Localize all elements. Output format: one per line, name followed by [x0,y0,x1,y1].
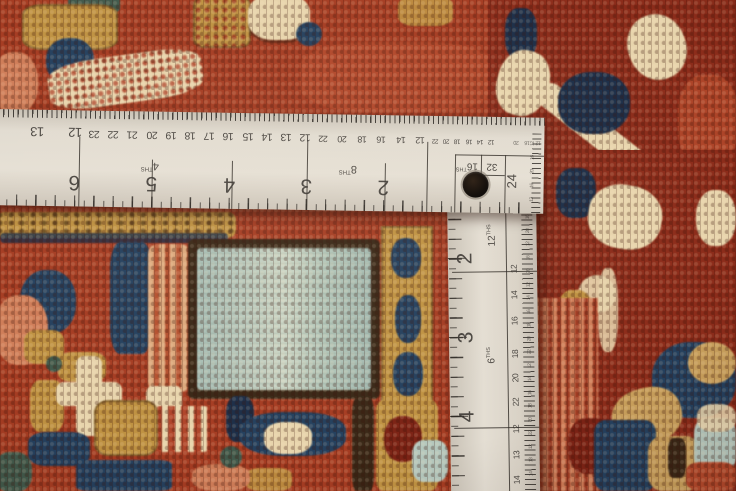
ruler-number: 18 [511,350,520,359]
ruler-corner-line [481,155,482,175]
ruler-number: 12 [416,135,425,144]
scale-value: 12 [487,235,498,246]
rug-motif-navy-on-gold1 [391,238,421,278]
ruler-scale-label-8ths: 8THS [339,163,357,175]
scale-value: 16 [467,160,478,171]
ruler-number: 4 [457,411,478,422]
rug-motif-gold-bits-bl [246,468,292,491]
rug-motif-salmon-blob [0,52,38,114]
ruler-number: 16 [223,130,234,141]
rug-motif-cream-blob-c [264,422,312,454]
rug-motif-redcream-stripes [155,406,209,452]
ruler-number: 20 [530,169,535,174]
ruler-number: 16 [531,155,536,160]
ruler-number: 16 [377,135,386,144]
ruler-number: 2 [454,253,475,264]
ruler-number: 14 [529,471,534,476]
ruler-number: 12 [527,282,532,287]
ruler-number: 12 [488,138,494,145]
ruler-number: 22 [108,129,119,140]
rug-motif-peach-columns [148,244,190,392]
rug-motif-bluesquare [197,248,371,390]
ruler-number: 3 [455,332,476,343]
ruler-number: 16 [528,390,533,395]
rug-motif-gold-L [94,400,158,456]
ruler-hang-hole [462,171,488,197]
ruler-number: 12 [528,363,533,368]
scale-unit: THS [486,347,492,358]
ruler-number: 4 [223,174,235,195]
scale-value: 6 [486,358,497,364]
ruler-number: 14 [528,377,533,382]
rug-motif-teal-c [220,446,242,468]
ruler-number: 12 [512,425,521,434]
ruler-number: 13 [281,131,292,142]
rug-motif-red-patch [300,42,495,112]
scale-unit: THS [486,224,492,235]
ruler-number: 12 [526,242,531,247]
ruler-number: 20 [511,374,520,383]
ruler-number: 12 [300,132,311,143]
scale-value: 4 [153,160,159,172]
rug-motif-red-bits [686,462,736,491]
ruler-number: 20 [527,269,532,274]
ruler-number: 20 [529,417,534,422]
ruler-number: 14 [513,476,522,485]
rug-motif-navy-curl2 [558,72,630,134]
rug-motif-teal-dots-bl [0,452,32,491]
ruler-number: 18 [527,323,532,328]
rug-motif-brown-stripe [352,398,374,491]
ruler-number: 14 [527,296,532,301]
ruler-number: 18 [528,404,533,409]
ruler-number: 12 [69,126,83,139]
ruler-number: 14 [510,291,519,300]
rug-motif-navy-dot [296,22,322,46]
ruler-number: 16 [526,215,531,220]
ruler-scale-label-6ths: 6THS [487,347,498,364]
ruler-number: 20 [338,134,347,143]
scale-value: 32 [486,161,497,172]
ruler-number: 21 [127,129,138,140]
ruler-number: 13 [529,458,534,463]
ruler-number: 22 [512,398,521,407]
ruler-scale-label-12ths: 12THS [487,224,498,246]
ruler-horizontal-arm: 1312 232221201918171615141312 2220181614… [0,109,545,214]
ruler-number: 14 [477,137,483,144]
ruler-number: 22 [432,137,438,144]
ruler-number: 18 [358,134,367,143]
rug-motif-teal-dot [46,356,62,372]
ruler-number: 22 [529,431,534,436]
photo-scene: 12THS 6THS 234 121416 182022 121314 1620… [0,0,736,491]
rug-motif-navy-column [110,242,152,354]
ruler-number: 5 [146,173,158,194]
ruler-number: 16 [530,183,535,188]
ruler-number: 14 [262,131,273,142]
ruler-number: 13 [31,125,45,138]
ruler-number: 20 [514,139,519,145]
rug-motif-tan-floral [688,342,736,384]
rug-motif-cream-zig2 [696,190,736,246]
ruler-number: 12 [530,197,535,202]
ruler-scale-label-32nds: 32 [486,161,497,171]
ruler-number: 22 [528,350,533,355]
ruler-number: 16 [466,137,472,144]
scale-value: 8 [351,163,357,175]
scale-unit: THS [456,166,467,172]
rug-motif-lightblue-bb [412,440,448,482]
ruler-number: 12 [531,141,536,146]
ruler-number: 16 [527,309,532,314]
ruler-scale-label-16ths: 16THS [456,160,478,171]
rug-motif-navy-band-bottom [76,460,172,491]
rug [0,0,736,491]
rug-motif-gold-block2 [193,0,251,48]
ruler-vertical-arm: 12THS 6THS 234 121416 182022 121314 1620… [447,195,540,491]
ruler-number: 17 [204,130,215,141]
ruler-number: 16 [510,317,519,326]
ruler-number: 18 [185,130,196,141]
ruler-number: 19 [166,130,177,141]
rug-motif-salmon-bl [192,464,250,491]
ruler-number: 20 [443,137,449,144]
rug-motif-brown-stick [668,438,686,478]
ruler-number: 23 [89,128,100,139]
ruler-scale-divider [505,207,510,491]
rug-motif-cream-wisp [697,404,736,432]
rug-motif-cream-col [598,268,618,352]
ruler-number: 22 [319,134,328,143]
ruler-scale-label-4ths: 4THS [141,160,159,172]
ruler-corner-24: 24 [505,174,518,189]
scale-unit: THS [141,165,153,171]
scale-unit: THS [339,168,351,174]
rug-motif-navy-patch [594,420,656,491]
ruler-number: 20 [527,336,532,341]
ruler-number: 3 [301,175,313,196]
ruler-number: 18 [455,137,461,144]
ruler-number: 20 [147,129,158,140]
ruler-number: 12 [536,139,541,145]
ruler-number: 15 [243,131,254,142]
ruler-number: 13 [512,450,521,459]
rug-motif-gold-hint [398,0,453,26]
ruler-number: 20 [526,228,531,233]
ruler-number: 12 [510,265,519,274]
ruler-number: 14 [396,135,405,144]
rug-motif-navy-on-gold2 [395,295,421,343]
ruler-number: 16 [526,255,531,260]
rug-motif-navy-on-gold3 [393,352,423,396]
ruler-number: 12 [529,444,534,449]
ruler-number: 2 [378,177,390,198]
ruler-number: 6 [69,172,81,193]
